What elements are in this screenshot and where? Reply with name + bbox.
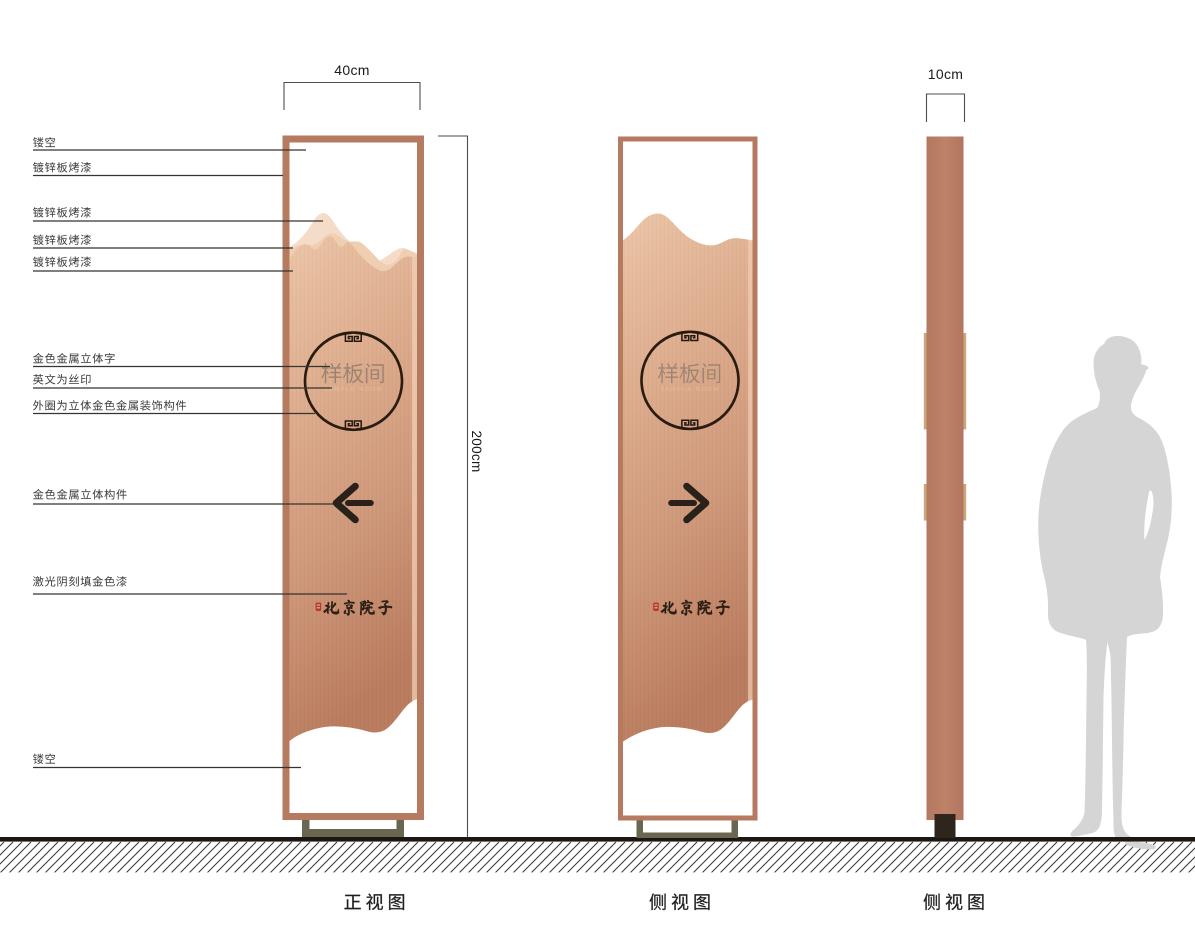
svg-text:SAMPLE ROOM: SAMPLE ROOM [660, 387, 719, 393]
svg-text:SAMPLE ROOM: SAMPLE ROOM [324, 387, 383, 393]
svg-text:40cm: 40cm [334, 62, 369, 78]
svg-text:10cm: 10cm [928, 66, 963, 82]
svg-text:200cm: 200cm [469, 431, 484, 473]
